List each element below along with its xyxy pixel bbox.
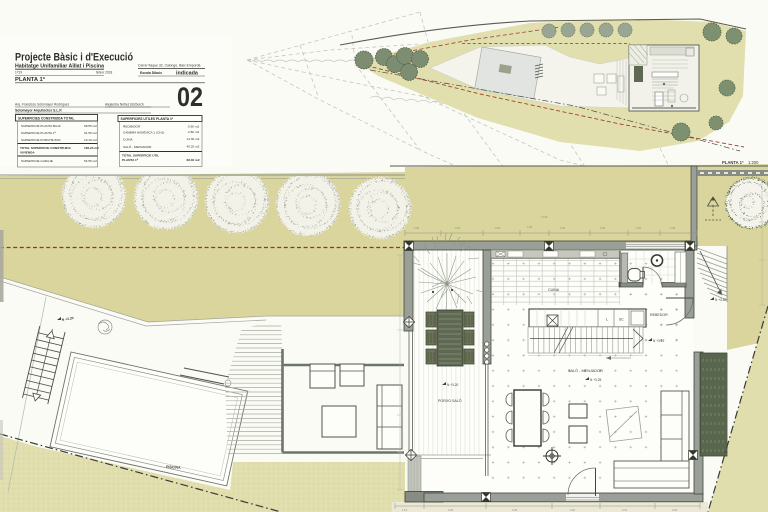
svg-text:2.80 m2: 2.80 m2 <box>188 130 199 134</box>
svg-text:2.90: 2.90 <box>414 226 420 230</box>
svg-text:TOTAL SUPERFICIE CONSTRUIDA: TOTAL SUPERFICIE CONSTRUIDA <box>20 146 72 150</box>
svg-text:PORXO SALÓ: PORXO SALÓ <box>438 398 462 403</box>
svg-text:SUPERFICIES CONSTRUIDA TOTAL: SUPERFICIES CONSTRUIDA TOTAL <box>18 116 74 120</box>
svg-text:SALÓ - MENJADOR: SALÓ - MENJADOR <box>123 144 152 149</box>
svg-text:3.05: 3.05 <box>600 226 606 230</box>
svg-text:indicada: indicada <box>176 71 199 77</box>
svg-text:3.30: 3.30 <box>560 226 566 230</box>
svg-text:febrer 2018: febrer 2018 <box>96 71 113 75</box>
svg-text:REBEDOR: REBEDOR <box>650 313 668 317</box>
svg-text:Alejandra Núñez Elizburch: Alejandra Núñez Elizburch <box>105 103 144 107</box>
svg-text:RECIBIDOR: RECIBIDOR <box>123 125 141 129</box>
svg-text:14.30 m2: 14.30 m2 <box>187 137 200 141</box>
svg-text:VIVIENDA: VIVIENDA <box>20 151 35 155</box>
svg-text:N +3.20: N +3.20 <box>447 383 458 387</box>
svg-text:PLANTA 1ª: PLANTA 1ª <box>122 158 139 162</box>
svg-text:Escala Dibuix: Escala Dibuix <box>140 71 162 75</box>
svg-text:Sotomayor Arquitectes S.L.P.: Sotomayor Arquitectes S.L.P. <box>15 109 62 113</box>
svg-text:02: 02 <box>177 82 203 112</box>
svg-text:SUPERFICIE PLANTA 1ª: SUPERFICIE PLANTA 1ª <box>21 131 57 135</box>
svg-text:5.60 m2: 5.60 m2 <box>188 125 199 129</box>
svg-text:SUPERFICIES UTILES PLANTA 1ª: SUPERFICIES UTILES PLANTA 1ª <box>121 117 174 121</box>
svg-text:Carrer Itaque 32, Calonge, Bai: Carrer Itaque 32, Calonge, Baix Empordà <box>138 64 200 68</box>
svg-text:N +3.40: N +3.40 <box>715 298 726 302</box>
svg-text:SUPERFICIE PLANTA BAJA: SUPERFICIE PLANTA BAJA <box>21 124 62 128</box>
svg-text:4.45: 4.45 <box>512 508 518 512</box>
svg-text:1.10: 1.10 <box>402 508 408 512</box>
svg-text:PISCINA: PISCINA <box>166 465 181 470</box>
svg-text:3.05: 3.05 <box>672 508 678 512</box>
svg-text:CUINA: CUINA <box>123 138 134 142</box>
svg-text:SALÓ - MENJADOR: SALÓ - MENJADOR <box>568 368 603 373</box>
svg-text:CAMBRA HIGIÈNICA 1 (CH1): CAMBRA HIGIÈNICA 1 (CH1) <box>123 130 164 135</box>
svg-text:91.55 m2: 91.55 m2 <box>84 131 97 135</box>
svg-text:98.55 m2: 98.55 m2 <box>84 124 97 128</box>
svg-text:PLANTA 1ª: PLANTA 1ª <box>15 76 46 83</box>
svg-text:3.70: 3.70 <box>622 508 628 512</box>
svg-text:3.00: 3.00 <box>495 226 501 230</box>
svg-text:SUPERFICIE PORCHE 50%: SUPERFICIE PORCHE 50% <box>21 138 61 142</box>
svg-text:PLANTA 1ª: PLANTA 1ª <box>722 160 744 165</box>
svg-text:10.10 m2: 10.10 m2 <box>84 138 97 142</box>
svg-text:4.20: 4.20 <box>448 508 454 512</box>
svg-text:2.95: 2.95 <box>670 226 676 230</box>
svg-text:17.90: 17.90 <box>541 215 548 219</box>
svg-text:CUINA: CUINA <box>548 288 560 292</box>
svg-text:TOTAL SUPERFICIE UTIL: TOTAL SUPERFICIE UTIL <box>122 154 159 158</box>
svg-text:N +3.25: N +3.25 <box>590 378 601 382</box>
svg-text:N +3.19: N +3.19 <box>653 339 664 343</box>
svg-text:3.35: 3.35 <box>455 226 461 230</box>
svg-text:195.20 m2: 195.20 m2 <box>84 146 99 150</box>
svg-text:2.35: 2.35 <box>527 225 533 229</box>
svg-text:SC: SC <box>619 318 624 322</box>
svg-text:SUPERFICIE GARAJE: SUPERFICIE GARAJE <box>21 159 53 163</box>
svg-text:54.55 m2: 54.55 m2 <box>84 159 97 163</box>
svg-text:Projecte Bàsic i d'Execució: Projecte Bàsic i d'Execució <box>15 52 133 64</box>
svg-text:45.20 m2: 45.20 m2 <box>187 145 200 149</box>
svg-text:2.60: 2.60 <box>636 226 642 230</box>
svg-text:3.20: 3.20 <box>570 508 576 512</box>
svg-text:Habitatge Unifamiliar Aïllat i: Habitatge Unifamiliar Aïllat i Piscina <box>15 64 104 70</box>
svg-text:68.30 m2: 68.30 m2 <box>187 158 200 162</box>
svg-text:1719: 1719 <box>15 71 22 75</box>
svg-text:Arq. Francisco Sotomayor Rodr: Arq. Francisco Sotomayor Rodríguez <box>15 103 70 107</box>
